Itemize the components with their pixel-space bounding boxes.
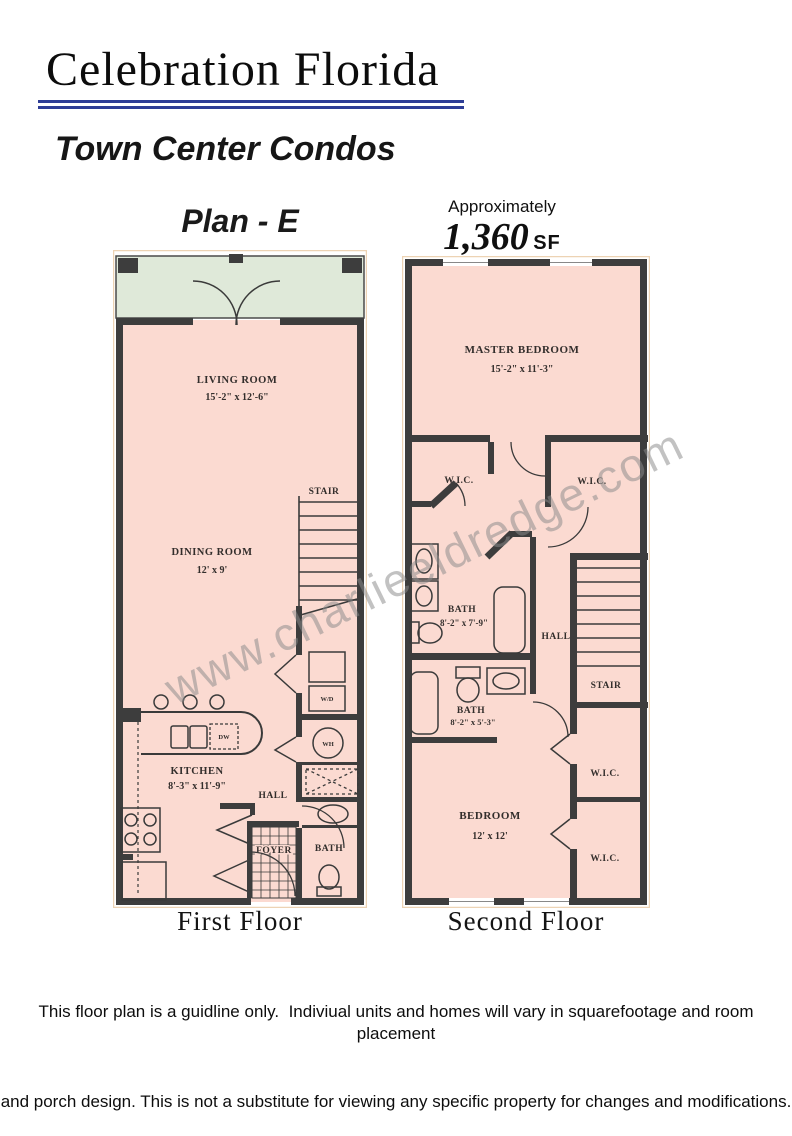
approx-label: Approximately [402, 197, 602, 217]
bath-bottom-wall [405, 653, 536, 660]
second-floor-caption: Second Floor [402, 906, 650, 937]
plan-name-label: Plan - E [113, 203, 367, 240]
page-subtitle: Town Center Condos [55, 130, 396, 169]
wic-label-1: W.I.C. [444, 476, 473, 486]
washer-dryer-label: W/D [321, 696, 334, 703]
wall-segment [296, 797, 364, 802]
disclaimer-line2: and porch design. This is not a substitu… [0, 1091, 792, 1113]
dishwasher-label: DW [218, 734, 230, 741]
living-room-label: LIVING ROOM [197, 375, 277, 386]
first-floor-plan: LIVING ROOM 15'-2" x 12'-6" DINING ROOM … [113, 250, 367, 908]
stair-left-wall [570, 560, 577, 702]
hall-label-f1: HALL [259, 791, 288, 801]
disclaimer-line1: This floor plan is a guidline only. Indi… [0, 1001, 792, 1046]
area-block: Approximately 1,360 SF [402, 197, 602, 259]
bath-upper-dims: 8'-2" x 7'-9" [440, 618, 488, 628]
bedroom-dims: 12' x 12' [472, 831, 508, 842]
bath-lower-label: BATH [457, 706, 485, 716]
wic-label-2: W.I.C. [577, 477, 606, 487]
page-title: Celebration Florida [46, 42, 440, 97]
porch-post-right [342, 258, 362, 273]
wall-stub [220, 803, 254, 809]
bath-lower-dims: 8'-2" x 5'-3" [450, 717, 495, 727]
second-floor-plan: MASTER BEDROOM 15'-2" x 11'-3" W.I.C. W.… [402, 256, 650, 908]
wall-segment [405, 501, 431, 507]
bar-stools-icon [154, 695, 224, 709]
wall-segment [296, 714, 364, 720]
water-heater-label: WH [322, 741, 334, 748]
disclaimer: This floor plan is a guidline only. Indi… [0, 956, 792, 1136]
dining-room-dims: 12' x 9' [197, 565, 228, 576]
area-value: 1,360 [443, 216, 529, 258]
wall-segment [530, 658, 536, 694]
wall-segment [302, 762, 364, 765]
bath-upper-label: BATH [448, 605, 476, 615]
wall-segment [570, 553, 648, 560]
kitchen-label: KITCHEN [170, 766, 223, 777]
dining-room-label: DINING ROOM [171, 547, 252, 558]
wall-stub [250, 803, 255, 815]
title-underline-rule [38, 100, 464, 109]
bath-label-f1: BATH [315, 844, 343, 854]
porch-post-left [118, 258, 138, 273]
bedroom-label: BEDROOM [459, 810, 521, 822]
master-bedroom-dims: 15'-2" x 11'-3" [491, 364, 554, 375]
master-bedroom-label: MASTER BEDROOM [465, 344, 580, 356]
kitchen-dims: 8'-3" x 11'-9" [168, 781, 226, 792]
first-floor-caption: First Floor [113, 906, 367, 937]
stair-label-f2: STAIR [591, 681, 622, 691]
area-unit: SF [533, 232, 561, 254]
wic-label-4: W.I.C. [590, 854, 619, 864]
wall-segment [405, 737, 497, 743]
foyer-left-wall [247, 827, 252, 898]
wall-segment [570, 702, 648, 708]
bath-right-wall [530, 537, 536, 658]
stair-label-f1: STAIR [309, 487, 340, 497]
wall-corner [117, 708, 141, 722]
porch-center-post [229, 254, 243, 263]
wall-stub [117, 854, 133, 860]
wic-label-3: W.I.C. [590, 769, 619, 779]
foyer-label: FOYER [256, 846, 292, 856]
hall-label-f2: HALL [542, 632, 571, 642]
living-room-dims: 15'-2" x 12'-6" [205, 392, 268, 403]
wall-segment [302, 825, 364, 828]
foyer-top-wall [247, 821, 299, 827]
wall-stub [510, 531, 532, 537]
porch [116, 256, 364, 318]
